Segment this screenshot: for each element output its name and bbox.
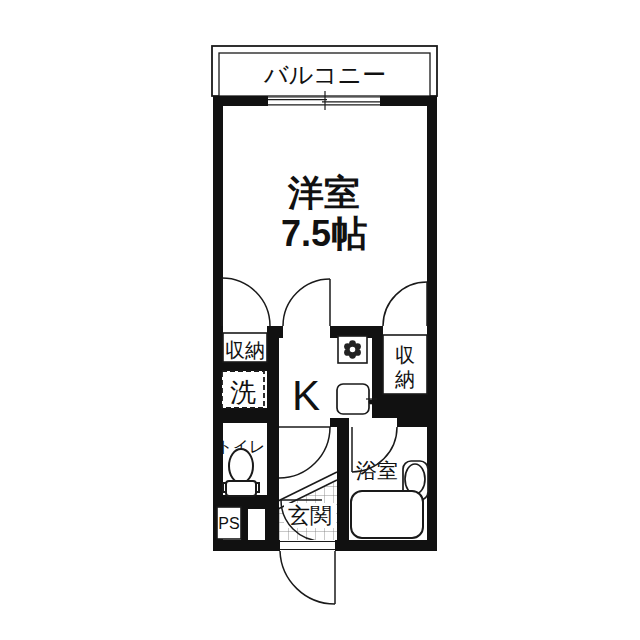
washer-space: 洗 [222, 371, 264, 408]
wall-under-closet-right [372, 394, 437, 418]
main-room-name: 洋室 [287, 172, 360, 213]
entrance: 玄関 [284, 503, 336, 528]
balcony: バルコニー [212, 46, 437, 96]
door-front [280, 540, 335, 604]
door-kitchen-to-hall [279, 427, 330, 478]
door-closet-right [383, 282, 427, 326]
sink-basin [337, 384, 369, 414]
sink-faucet-knob [369, 400, 374, 405]
toilet-bowl [229, 449, 253, 483]
main-room: 洋室 7.5帖 [281, 172, 367, 254]
closet-right-label-top: 収 [395, 344, 415, 366]
toilet-tank [226, 481, 256, 496]
wall-top-right [380, 96, 437, 106]
wall-mid-a [213, 326, 222, 338]
washbasin-bowl [405, 464, 425, 494]
wall-mid-d [427, 326, 437, 338]
wall-bath-top [397, 418, 437, 427]
wall-under-closet-left [213, 362, 267, 371]
balcony-label: バルコニー [263, 61, 386, 88]
closet-left: 収納 [223, 333, 267, 362]
wall-bottom-right [335, 540, 437, 551]
entrance-label: 玄関 [288, 503, 332, 528]
kitchen: K [292, 336, 377, 419]
wall-entrance-left [265, 509, 279, 540]
toilet-room: トイレ [216, 438, 265, 496]
wall-bottom-left [213, 540, 280, 551]
washer-label: 洗 [230, 377, 256, 407]
wall-hall-corner [330, 418, 349, 427]
main-room-size: 7.5帖 [281, 213, 367, 254]
wall-top-left [213, 96, 270, 106]
pipe-space-label: PS [218, 515, 239, 532]
pipe-space: PS [217, 507, 241, 539]
wall-kitchen-left [267, 326, 279, 509]
kitchen-label: K [292, 372, 320, 419]
door-kitchen-to-room [283, 279, 330, 326]
stove-icon [338, 336, 367, 363]
floorplan-svg: バルコニー [0, 0, 640, 640]
closet-right: 収 納 [383, 335, 427, 394]
toilet-icon [223, 449, 259, 496]
wall-ps-right [241, 509, 248, 540]
floorplan-canvas: バルコニー [0, 0, 640, 640]
sink-icon [337, 384, 377, 414]
closet-left-label: 収納 [225, 339, 265, 361]
closet-right-label-bottom: 納 [395, 368, 415, 390]
door-closet-left [222, 278, 270, 326]
wall-under-washer [213, 408, 267, 423]
wall-bath-left [337, 418, 349, 551]
bathtub-icon [351, 491, 423, 538]
